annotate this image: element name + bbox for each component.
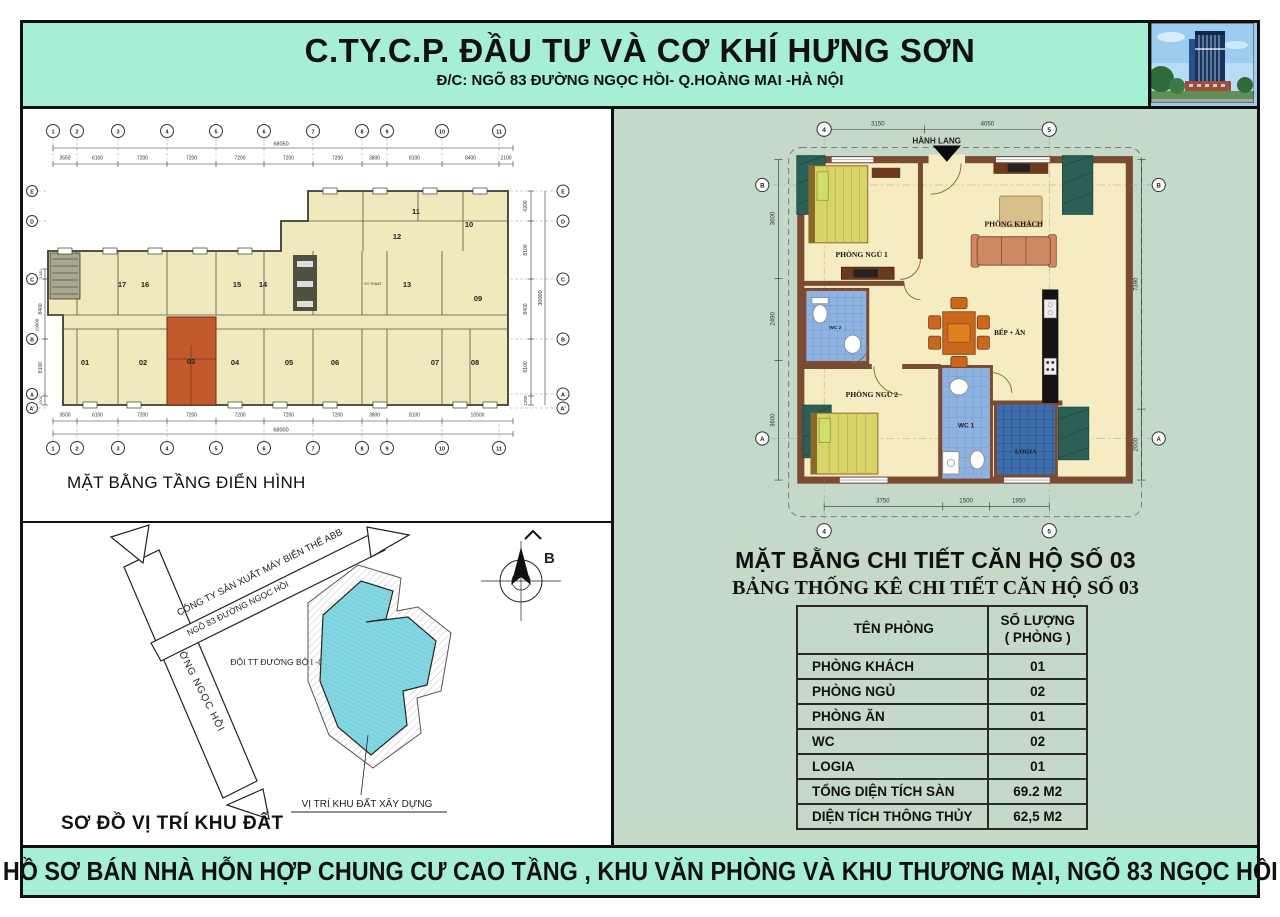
unit-label-03: 03	[187, 357, 195, 366]
grid-col-label: 3	[116, 447, 119, 453]
dim-label: 3750	[876, 497, 890, 504]
unit-label: 16	[141, 280, 149, 289]
grid-row-label: A	[30, 393, 34, 399]
footer-banner: HỒ SƠ BÁN NHÀ HỖN HỢP CHUNG CƯ CAO TẦNG …	[23, 845, 1257, 895]
col-header-room: TÊN PHÒNG	[797, 606, 988, 654]
dim-label: 7200	[234, 413, 245, 419]
grid-col-label: 11	[496, 447, 502, 453]
grid-col-label: 10	[439, 130, 445, 136]
stair-core	[50, 253, 80, 299]
grid-col-label: 11	[496, 130, 502, 136]
room-name: TỔNG DIỆN TÍCH SÀN	[797, 779, 988, 804]
grid-col-label: 8	[360, 130, 363, 136]
north-chevron-icon	[525, 531, 541, 539]
dim-total-left: 19000	[35, 318, 40, 331]
dim-label: 8100	[38, 362, 44, 373]
table-row: LOGIA01	[797, 754, 1087, 779]
unit-label: 07	[431, 358, 439, 367]
dim-label: 8400	[523, 303, 529, 314]
table-header-row: TÊN PHÒNG SỐ LƯỢNG ( PHÒNG )	[797, 606, 1087, 654]
detail-titles: MẶT BẰNG CHI TIẾT CĂN HỘ SỐ 03 BẢNG THỐN…	[614, 547, 1257, 600]
dim-total-bottom: 68000	[273, 428, 288, 434]
title-block: C.TY.C.P. ĐẦU TƯ VÀ CƠ KHÍ HƯNG SƠN Đ/C:…	[23, 23, 1257, 109]
site-map-caption: SƠ ĐỒ VỊ TRÍ KHU ĐẤT	[61, 813, 284, 835]
grid-row-label: C	[30, 278, 34, 284]
grid-col-label: 4	[822, 127, 826, 134]
wc1-room: WC 1	[941, 367, 992, 481]
room-name: LOGIA	[797, 754, 988, 779]
dim-label: 2000	[1132, 437, 1139, 451]
unit-label: 08	[471, 358, 479, 367]
unit-label: 17	[118, 280, 126, 289]
dim-label: 8100	[523, 244, 529, 255]
sink-icon	[844, 335, 860, 353]
grid-row-label: B	[760, 183, 765, 190]
grid-col-label: 1	[51, 447, 54, 453]
col-header-qty-line1: SỐ LƯỢNG	[993, 613, 1082, 630]
room-qty: 01	[988, 704, 1087, 729]
unit-label: 04	[231, 358, 240, 367]
grid-row-label: E	[561, 190, 565, 196]
north-label: B	[544, 550, 555, 567]
grid-col-label: 3	[116, 130, 119, 136]
grid-rows-left: E D C B A A' 1300 8400 8100 1200 19000	[27, 186, 49, 414]
grid-row-label: B	[561, 338, 565, 344]
unit-label: 11	[412, 207, 420, 216]
unit-label: 05	[285, 358, 293, 367]
dim-label: 6100	[92, 413, 103, 419]
site-parcel	[308, 565, 451, 768]
grid-row-label: A	[1157, 436, 1162, 443]
grid-col-label: 7	[311, 447, 314, 453]
typical-floorplan-drawing: 1 2 3 4 5 6 7 8 9 10 11	[23, 115, 611, 467]
grid-col-label: 4	[822, 528, 826, 535]
dim-label: 3500	[59, 413, 70, 419]
north-compass: B	[481, 531, 561, 621]
logia-label: LOGIA	[1015, 449, 1037, 456]
grid-col-label: 1	[51, 130, 54, 136]
grid-col-label: 2	[75, 447, 78, 453]
dim-label: 7390	[1132, 277, 1139, 291]
grid-row-label: A	[760, 436, 765, 443]
detail-plan-title: MẶT BẰNG CHI TIẾT CĂN HỘ SỐ 03	[614, 547, 1257, 574]
company-name: C.TY.C.P. ĐẦU TƯ VÀ CƠ KHÍ HƯNG SƠN	[23, 23, 1257, 70]
footer-text: HỒ SƠ BÁN NHÀ HỖN HỢP CHUNG CƯ CAO TẦNG …	[3, 856, 1278, 887]
dim-label: 7200	[234, 156, 245, 162]
sheet-body: 1 2 3 4 5 6 7 8 9 10 11	[23, 109, 1257, 845]
apartment-dims-left: B A 3600 2490 3600	[756, 160, 783, 480]
site-map-drawing: ĐƯỜNG NGỌC HỒI CÔNG TY SẢN XUẤT MÁY BIẾN…	[23, 523, 611, 821]
kitchen-counter	[1042, 289, 1058, 403]
wc1-label: WC 1	[958, 422, 975, 429]
grid-col-label: 10	[439, 447, 445, 453]
stove-icon	[1044, 358, 1056, 374]
apartment-dims-right: B A 7390 2000	[1132, 160, 1165, 480]
unit-label: 10	[465, 220, 473, 229]
table-row: WC02	[797, 729, 1087, 754]
unit-label: 01	[81, 358, 89, 367]
right-panel: 4 5 3150 4050 HÀNH LANG	[614, 109, 1257, 845]
dim-label: 8100	[409, 156, 420, 162]
dim-label: 1200	[523, 395, 528, 406]
building-render	[1151, 23, 1254, 103]
dim-label: 7200	[186, 413, 197, 419]
bedroom2-label: PHÒNG NGỦ 2	[846, 389, 899, 399]
table-row: PHÒNG ĂN01	[797, 704, 1087, 729]
dim-label: 3800	[369, 156, 380, 162]
bed2	[811, 413, 878, 474]
dim-label: 10500	[471, 413, 485, 419]
sink-icon	[950, 379, 968, 395]
col-header-qty-line2: ( PHÒNG )	[993, 630, 1082, 647]
grid-col-label: 5	[214, 130, 217, 136]
site-callout-label: VỊ TRÍ KHU ĐẤT XÂY DỰNG	[302, 797, 433, 810]
road-arrow-up	[111, 525, 149, 563]
pillow	[819, 418, 830, 442]
typical-floorplan-section: 1 2 3 4 5 6 7 8 9 10 11	[23, 109, 611, 523]
unit-label: 13	[403, 280, 411, 289]
room-qty: 69.2 M2	[988, 779, 1087, 804]
dim-label: 2100	[500, 156, 511, 162]
room-name: PHÒNG ĂN	[797, 704, 988, 729]
grid-col-label: 5	[1047, 528, 1051, 535]
room-qty: 01	[988, 654, 1087, 679]
dim-label: 3800	[369, 413, 380, 419]
unit-label: 09	[474, 294, 482, 303]
grid-col-label: 2	[75, 130, 78, 136]
grid-col-label: 8	[360, 447, 363, 453]
grid-row-label: B	[30, 338, 34, 344]
grid-col-label: 7	[311, 130, 314, 136]
dim-label: 7200	[186, 156, 197, 162]
grid-col-label: 9	[385, 447, 388, 453]
sofa	[977, 237, 1050, 265]
building-outline	[48, 191, 508, 405]
dim-label: 8400	[38, 303, 44, 314]
dim-label: 1300	[38, 269, 43, 279]
grid-rows-right: E D C B A A' 4200 8100 8400 8100 1200	[510, 185, 569, 414]
grid-row-label: A	[561, 393, 565, 399]
dim-label: 4050	[981, 121, 995, 128]
dim-label: 4200	[523, 200, 529, 211]
apartment-03-drawing: 4 5 3150 4050 HÀNH LANG	[752, 111, 1168, 547]
bedroom1-label: PHÒNG NGỦ 1	[835, 249, 888, 259]
grid-row-label: D	[561, 220, 565, 226]
road-arrow-right	[367, 527, 409, 557]
unit-label: 14	[259, 280, 268, 289]
grid-col-label: 5	[214, 447, 217, 453]
dim-label: 1200	[38, 395, 43, 405]
grid-row-label: D	[30, 220, 34, 226]
left-panel: 1 2 3 4 5 6 7 8 9 10 11	[23, 109, 614, 845]
grid-row-label: C	[561, 278, 565, 284]
table-row: PHÒNG NGỦ02	[797, 679, 1087, 704]
dim-label: 2490	[769, 311, 776, 325]
dim-string-top: 68050 3550 6100 7200 7200 7200 7200 7200…	[53, 142, 513, 168]
room-qty: 01	[988, 754, 1087, 779]
dim-label: 7200	[332, 156, 343, 162]
dim-label: 7200	[332, 413, 343, 419]
dim-label: 6100	[92, 156, 103, 162]
road-duong-ngoc-hoi: ĐƯỜNG NGỌC HỒI	[111, 525, 269, 819]
unit-label: 06	[331, 358, 339, 367]
kitchen-label: BẾP + ĂN	[994, 329, 1026, 337]
room-qty: 02	[988, 729, 1087, 754]
wc2-room: WC 2	[805, 289, 868, 362]
grid-col-label: 6	[262, 447, 265, 453]
company-address: Đ/C: NGÕ 83 ĐƯỜNG NGỌC HỒI- Q.HOÀNG MAI …	[23, 72, 1257, 89]
detail-table-title: BẢNG THỐNG KÊ CHI TIẾT CĂN HỘ SỐ 03	[614, 577, 1257, 600]
dim-label: 1500	[959, 497, 973, 504]
corridor-label: HÀNH LANG	[912, 136, 961, 145]
grid-row-label: A'	[30, 407, 35, 413]
room-quantity-table: TÊN PHÒNG SỐ LƯỢNG ( PHÒNG ) PHÒNG KHÁCH…	[796, 605, 1088, 830]
wc2-label: WC 2	[829, 325, 841, 331]
unit-label: 12	[393, 232, 401, 241]
room-name: PHÒNG KHÁCH	[797, 654, 988, 679]
room-name: WC	[797, 729, 988, 754]
toilet-icon	[970, 451, 984, 469]
tech-room-label: KY THUAT	[365, 282, 383, 286]
apartment-dims-bottom: 3750 1500 1950 4 5	[817, 497, 1056, 537]
dim-label: 8100	[409, 413, 420, 419]
dim-label: 8100	[523, 361, 529, 372]
logia-room: LOGIA	[995, 403, 1056, 476]
room-qty: 62,5 M2	[988, 804, 1087, 829]
toilet-icon	[813, 305, 827, 323]
grid-row-label: A'	[560, 407, 566, 413]
dim-label: 1950	[1012, 497, 1026, 504]
grid-row-label: B	[1157, 183, 1162, 190]
dim-label: 3600	[769, 413, 776, 427]
table-row: DIỆN TÍCH THÔNG THỦY62,5 M2	[797, 804, 1087, 829]
table-row: TỔNG DIỆN TÍCH SÀN69.2 M2	[797, 779, 1087, 804]
tv-icon	[1008, 164, 1030, 172]
unit-label: 15	[233, 280, 241, 289]
dim-label: 7200	[283, 413, 294, 419]
dim-label: 3600	[769, 211, 776, 225]
site-map-section: ĐƯỜNG NGỌC HỒI CÔNG TY SẢN XUẤT MÁY BIẾN…	[23, 523, 611, 843]
dim-total-top: 68050	[273, 142, 288, 148]
dim-total-right: 30000	[538, 290, 544, 305]
room-name: DIỆN TÍCH THÔNG THỦY	[797, 804, 988, 829]
floor-drain	[943, 452, 959, 474]
dim-label: 8400	[465, 156, 476, 162]
grid-col-label: 6	[262, 130, 265, 136]
apartment-dims-top: 4 5 3150 4050 HÀNH LANG	[817, 121, 1056, 146]
unit-label: 02	[139, 358, 147, 367]
building-render-image	[1148, 23, 1257, 106]
dim-label: 3550	[59, 156, 70, 162]
pillow	[817, 172, 828, 200]
floorplan-caption: MẶT BẰNG TẦNG ĐIỂN HÌNH	[67, 473, 306, 493]
nightstand	[872, 168, 900, 178]
grid-col-label: 5	[1047, 127, 1051, 134]
grid-col-label: 9	[385, 130, 388, 136]
room-name: PHÒNG NGỦ	[797, 679, 988, 704]
dim-label: 7200	[137, 156, 148, 162]
living-label: PHÒNG KHÁCH	[985, 219, 1044, 229]
dim-label: 7200	[283, 156, 294, 162]
dim-label: 3150	[871, 121, 885, 128]
table-row: PHÒNG KHÁCH01	[797, 654, 1087, 679]
col-header-qty: SỐ LƯỢNG ( PHÒNG )	[988, 606, 1087, 654]
dim-label: 7200	[137, 413, 148, 419]
room-qty: 02	[988, 679, 1087, 704]
drawing-sheet: C.TY.C.P. ĐẦU TƯ VÀ CƠ KHÍ HƯNG SƠN Đ/C:…	[20, 20, 1260, 898]
dim-string-bottom: 3500 6100 7200 7200 7200 7200 7200 3800 …	[53, 413, 513, 438]
